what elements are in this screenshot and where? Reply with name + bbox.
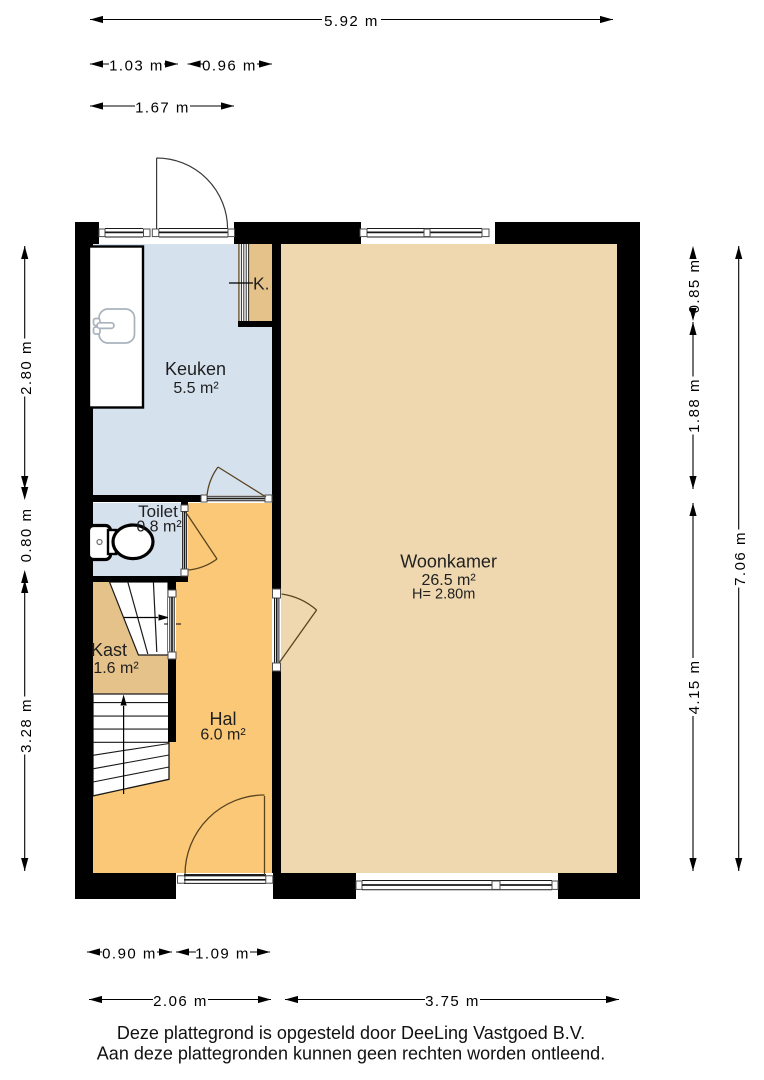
- svg-text:Deze plattegrond is opgesteld: Deze plattegrond is opgesteld door DeeLi…: [117, 1023, 585, 1043]
- svg-text:K.: K.: [253, 273, 270, 293]
- svg-text:1.88 m: 1.88 m: [686, 378, 703, 433]
- svg-text:3.28 m: 3.28 m: [18, 698, 35, 753]
- svg-text:1.67 m: 1.67 m: [135, 100, 190, 117]
- svg-text:2.06 m: 2.06 m: [153, 993, 208, 1010]
- svg-text:5.5 m²: 5.5 m²: [173, 380, 219, 397]
- svg-text:Keuken: Keuken: [165, 359, 226, 379]
- svg-text:Aan deze plattegronden kunnen: Aan deze plattegronden kunnen geen recht…: [97, 1044, 605, 1064]
- svg-text:1.03 m: 1.03 m: [109, 58, 164, 75]
- svg-text:4.15 m: 4.15 m: [686, 660, 703, 715]
- svg-text:H= 2.80m: H= 2.80m: [412, 586, 475, 602]
- svg-text:0.90 m: 0.90 m: [102, 946, 157, 963]
- svg-text:Kast: Kast: [91, 640, 127, 660]
- svg-text:2.80 m: 2.80 m: [18, 340, 35, 395]
- svg-text:0.8 m²: 0.8 m²: [136, 518, 182, 535]
- svg-text:7.06 m: 7.06 m: [732, 531, 749, 586]
- svg-text:0.80 m: 0.80 m: [18, 508, 35, 563]
- svg-text:Woonkamer: Woonkamer: [400, 551, 497, 571]
- svg-text:6.0 m²: 6.0 m²: [200, 727, 246, 744]
- svg-text:1.09 m: 1.09 m: [195, 946, 250, 963]
- svg-text:0.85 m: 0.85 m: [686, 259, 703, 314]
- svg-text:0.96 m: 0.96 m: [202, 58, 257, 75]
- svg-text:1.6 m²: 1.6 m²: [93, 660, 139, 677]
- svg-text:5.92 m: 5.92 m: [324, 13, 379, 30]
- svg-text:3.75 m: 3.75 m: [425, 993, 480, 1010]
